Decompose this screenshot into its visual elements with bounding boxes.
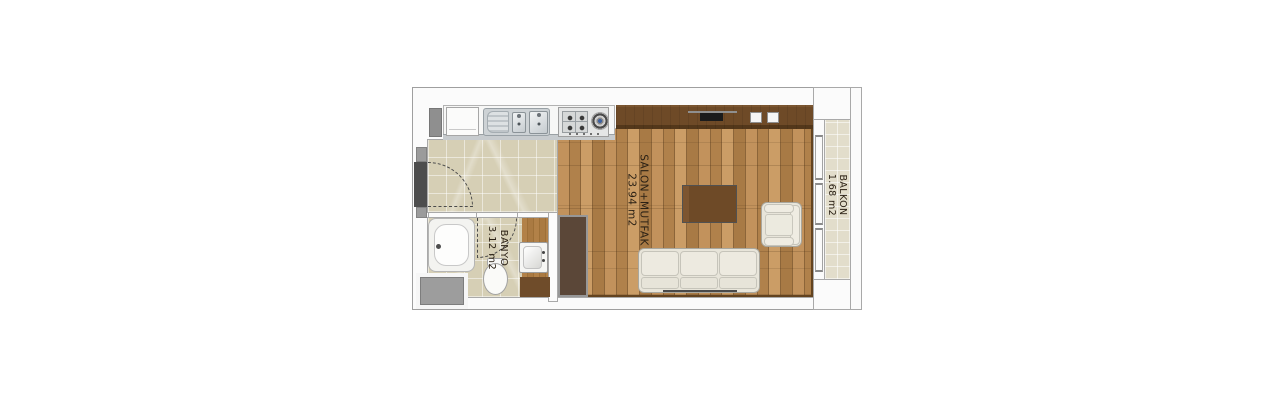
tv-icon (700, 113, 723, 121)
faucet-dot (542, 251, 545, 254)
duct-shaft (429, 108, 442, 137)
bathtub-drain (436, 244, 441, 249)
room-label-balkon: BALKON 1.68 m2 (826, 174, 848, 216)
fridge-icon (446, 107, 479, 136)
balcony-door-panel-1 (815, 135, 823, 180)
stove-knobs (569, 133, 603, 135)
room-area: 23.94 m2 (625, 154, 637, 246)
console-box-1 (750, 112, 762, 123)
stove-icon (558, 107, 609, 137)
sink-drainboard (487, 111, 509, 133)
room-name: BALKON (837, 174, 848, 216)
sofa-cushion (719, 251, 757, 276)
apartment-floorplan: SALON+MUTFAK 23.94 m2 BANYO 3.12 m2 BALK… (412, 87, 862, 310)
room-label-salon: SALON+MUTFAK 23.94 m2 (625, 154, 650, 246)
armchair-arm-bottom (764, 237, 794, 246)
room-label-banyo: BANYO 3.12 m2 (485, 226, 509, 270)
balcony-door-panel-2 (815, 183, 823, 225)
armchair-icon (761, 202, 802, 247)
sink-basin-left (512, 112, 526, 133)
floorplan-canvas: SALON+MUTFAK 23.94 m2 BANYO 3.12 m2 BALK… (0, 0, 1277, 402)
utility-shaft-block (420, 277, 464, 305)
sink-basin-right (529, 111, 548, 134)
bathroom-sink-icon (519, 242, 548, 273)
sofa-back-cushion (719, 277, 757, 289)
balcony-door-panel-3 (815, 228, 823, 272)
sofa-back-cushion (641, 277, 679, 289)
faucet-dot (542, 259, 545, 262)
wardrobe (558, 215, 588, 297)
room-area: 3.12 m2 (485, 226, 497, 270)
sofa-base-line (663, 290, 737, 292)
armchair-arm-top (764, 204, 794, 213)
sofa-cushion (680, 251, 718, 276)
bathroom-sink-basin (523, 246, 542, 269)
room-area: 1.68 m2 (826, 174, 837, 216)
entry-door-jamb-bottom (416, 207, 427, 218)
stove-burner-large (591, 112, 609, 130)
kitchen-sink-icon (483, 108, 550, 136)
right-outer-wall (850, 87, 862, 310)
stove-burner-grid (562, 111, 588, 133)
sofa-icon (638, 248, 760, 293)
vanity-cabinet (520, 277, 550, 297)
room-name: SALON+MUTFAK (637, 154, 649, 246)
sofa-cushion (641, 251, 679, 276)
entry-door-opening (414, 162, 427, 207)
coffee-table-icon (682, 185, 737, 223)
entry-door-jamb-top (416, 147, 427, 162)
room-name: BANYO (497, 226, 509, 270)
sofa-back-cushion (680, 277, 718, 289)
bathtub-icon (428, 218, 475, 272)
armchair-seat (765, 214, 793, 236)
console-box-2 (767, 112, 779, 123)
